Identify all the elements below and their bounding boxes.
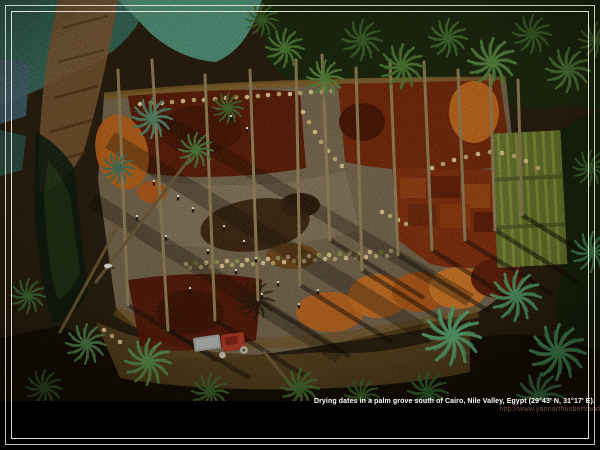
caption-bar: Drying dates in a palm grove south of Ca…: [0, 401, 600, 450]
photo-caption: Drying dates in a palm grove south of Ca…: [314, 398, 595, 414]
caption-url: http://www.yannarthusbertrand.org: [314, 406, 600, 414]
wallpaper-canvas: Drying dates in a palm grove south of Ca…: [0, 0, 600, 450]
caption-title: Drying dates in a palm grove south of Ca…: [314, 398, 595, 406]
aerial-photograph: [0, 0, 600, 401]
vignette: [0, 0, 600, 401]
